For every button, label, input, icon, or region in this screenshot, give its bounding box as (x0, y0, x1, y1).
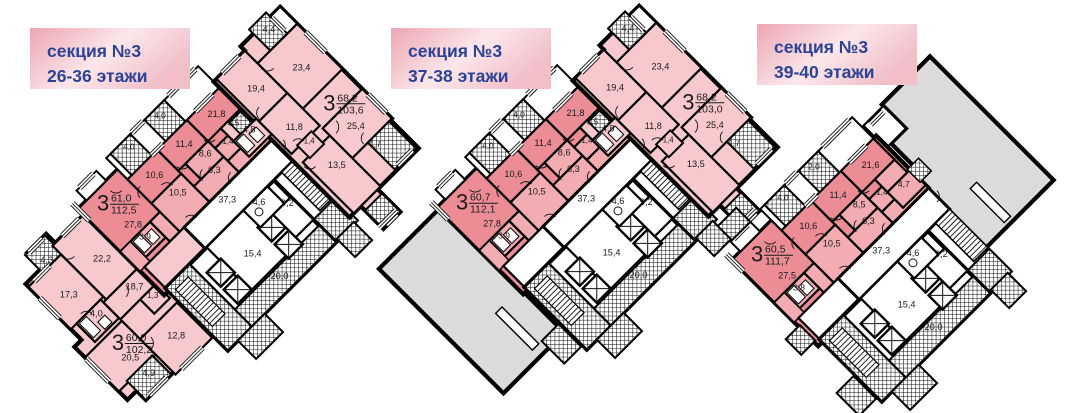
svg-text:21,6: 21,6 (862, 160, 880, 170)
svg-text:3,9: 3,9 (139, 232, 151, 242)
svg-text:60,0: 60,0 (126, 332, 147, 344)
svg-text:39-40 этажи: 39-40 этажи (774, 62, 875, 82)
svg-text:11,4: 11,4 (534, 138, 551, 148)
svg-text:1,4: 1,4 (304, 136, 316, 145)
svg-text:2,0: 2,0 (808, 162, 820, 172)
svg-text:68,2: 68,2 (696, 91, 717, 103)
svg-text:60,5: 60,5 (765, 244, 786, 256)
svg-text:37,3: 37,3 (218, 195, 236, 205)
svg-text:11,4: 11,4 (829, 190, 846, 200)
svg-text:9,2: 9,2 (281, 198, 294, 208)
svg-text:6,3: 6,3 (208, 165, 221, 175)
svg-text:19,4: 19,4 (606, 83, 624, 93)
svg-text:4,4: 4,4 (263, 24, 276, 34)
svg-text:26-36 этажи: 26-36 этажи (47, 66, 148, 86)
svg-text:17,3: 17,3 (60, 289, 78, 299)
svg-text:102,2: 102,2 (126, 344, 152, 356)
svg-text:13,5: 13,5 (687, 159, 705, 169)
svg-text:111,7: 111,7 (765, 256, 790, 268)
svg-text:19,4: 19,4 (247, 84, 265, 94)
svg-text:10,5: 10,5 (528, 187, 546, 197)
svg-text:4,6: 4,6 (612, 196, 625, 206)
svg-text:секция №3: секция №3 (408, 41, 502, 61)
svg-text:21,8: 21,8 (208, 109, 226, 119)
svg-text:3: 3 (456, 190, 468, 215)
svg-text:27,8: 27,8 (124, 219, 142, 229)
svg-text:9,2: 9,2 (640, 197, 653, 207)
svg-text:18,7: 18,7 (126, 282, 144, 292)
svg-text:8,6: 8,6 (558, 148, 571, 158)
svg-text:3,8: 3,8 (793, 283, 805, 293)
svg-text:секция №3: секция №3 (774, 37, 868, 57)
svg-text:1,4: 1,4 (663, 135, 675, 144)
svg-text:4,0: 4,0 (154, 111, 166, 121)
svg-text:3,5: 3,5 (228, 119, 240, 128)
svg-text:3: 3 (112, 330, 124, 355)
svg-text:112,5: 112,5 (111, 205, 137, 217)
svg-text:3,9: 3,9 (498, 231, 510, 241)
svg-text:4,7: 4,7 (728, 138, 741, 148)
svg-text:4,8: 4,8 (243, 125, 256, 135)
svg-text:12,8: 12,8 (167, 330, 185, 340)
svg-text:21,8: 21,8 (567, 108, 585, 118)
svg-text:37-38 этажи: 37-38 этажи (408, 66, 509, 86)
svg-text:15,4: 15,4 (244, 248, 262, 258)
svg-text:4,6: 4,6 (253, 197, 266, 207)
svg-text:4,0: 4,0 (482, 141, 494, 151)
svg-text:1,4: 1,4 (222, 137, 234, 146)
svg-text:3: 3 (682, 89, 694, 114)
svg-text:15,4: 15,4 (603, 247, 621, 257)
svg-text:13,5: 13,5 (328, 160, 346, 170)
svg-text:секция №3: секция №3 (47, 41, 141, 61)
svg-text:4,0: 4,0 (90, 309, 103, 319)
svg-text:4,3: 4,3 (40, 255, 53, 265)
svg-text:4,8: 4,8 (602, 124, 615, 134)
svg-text:4,7: 4,7 (369, 139, 382, 149)
svg-text:6,3: 6,3 (567, 164, 580, 174)
svg-text:20,0: 20,0 (925, 322, 943, 332)
svg-text:10,5: 10,5 (169, 188, 187, 198)
svg-text:4,6: 4,6 (907, 248, 920, 258)
svg-text:3,5: 3,5 (587, 118, 599, 127)
svg-text:4,9: 4,9 (142, 368, 155, 378)
svg-text:61,0: 61,0 (111, 193, 132, 205)
svg-text:10,6: 10,6 (799, 221, 817, 231)
svg-text:27,5: 27,5 (778, 270, 796, 280)
svg-text:8,5: 8,5 (853, 200, 866, 210)
svg-text:23,4: 23,4 (292, 63, 310, 73)
svg-text:60,7: 60,7 (470, 192, 491, 204)
svg-text:37,3: 37,3 (872, 246, 890, 256)
svg-text:1,4: 1,4 (876, 188, 888, 197)
svg-text:10,5: 10,5 (823, 239, 841, 249)
svg-text:1,4: 1,4 (581, 136, 593, 145)
svg-text:1,3: 1,3 (147, 291, 159, 300)
svg-text:4,0: 4,0 (123, 142, 135, 152)
svg-text:68,2: 68,2 (337, 92, 358, 104)
svg-text:25,4: 25,4 (347, 121, 365, 131)
svg-text:9,2: 9,2 (935, 249, 948, 259)
svg-text:10,6: 10,6 (145, 170, 163, 180)
svg-text:4,4: 4,4 (622, 23, 635, 33)
svg-text:4,7: 4,7 (898, 179, 910, 189)
svg-text:20,0: 20,0 (271, 271, 289, 281)
svg-text:3: 3 (323, 90, 335, 115)
svg-text:103,6: 103,6 (337, 104, 363, 116)
svg-text:112,1: 112,1 (470, 204, 496, 216)
svg-text:15,4: 15,4 (898, 299, 916, 309)
svg-text:25,4: 25,4 (706, 120, 724, 130)
svg-text:6,3: 6,3 (862, 216, 875, 226)
svg-text:4,0: 4,0 (513, 110, 525, 120)
svg-text:22,2: 22,2 (93, 253, 111, 263)
svg-text:20,0: 20,0 (630, 270, 648, 280)
svg-text:103,0: 103,0 (696, 103, 722, 115)
svg-text:10,6: 10,6 (504, 169, 522, 179)
svg-text:23,4: 23,4 (651, 62, 669, 72)
svg-text:8,6: 8,6 (199, 149, 212, 159)
svg-text:37,3: 37,3 (577, 194, 595, 204)
svg-text:3: 3 (97, 191, 109, 216)
svg-text:4,0: 4,0 (777, 193, 789, 203)
svg-text:11,8: 11,8 (645, 121, 662, 131)
svg-text:3: 3 (751, 242, 763, 267)
svg-text:11,8: 11,8 (286, 122, 303, 132)
svg-text:11,4: 11,4 (175, 139, 192, 149)
svg-text:27,8: 27,8 (483, 218, 501, 228)
